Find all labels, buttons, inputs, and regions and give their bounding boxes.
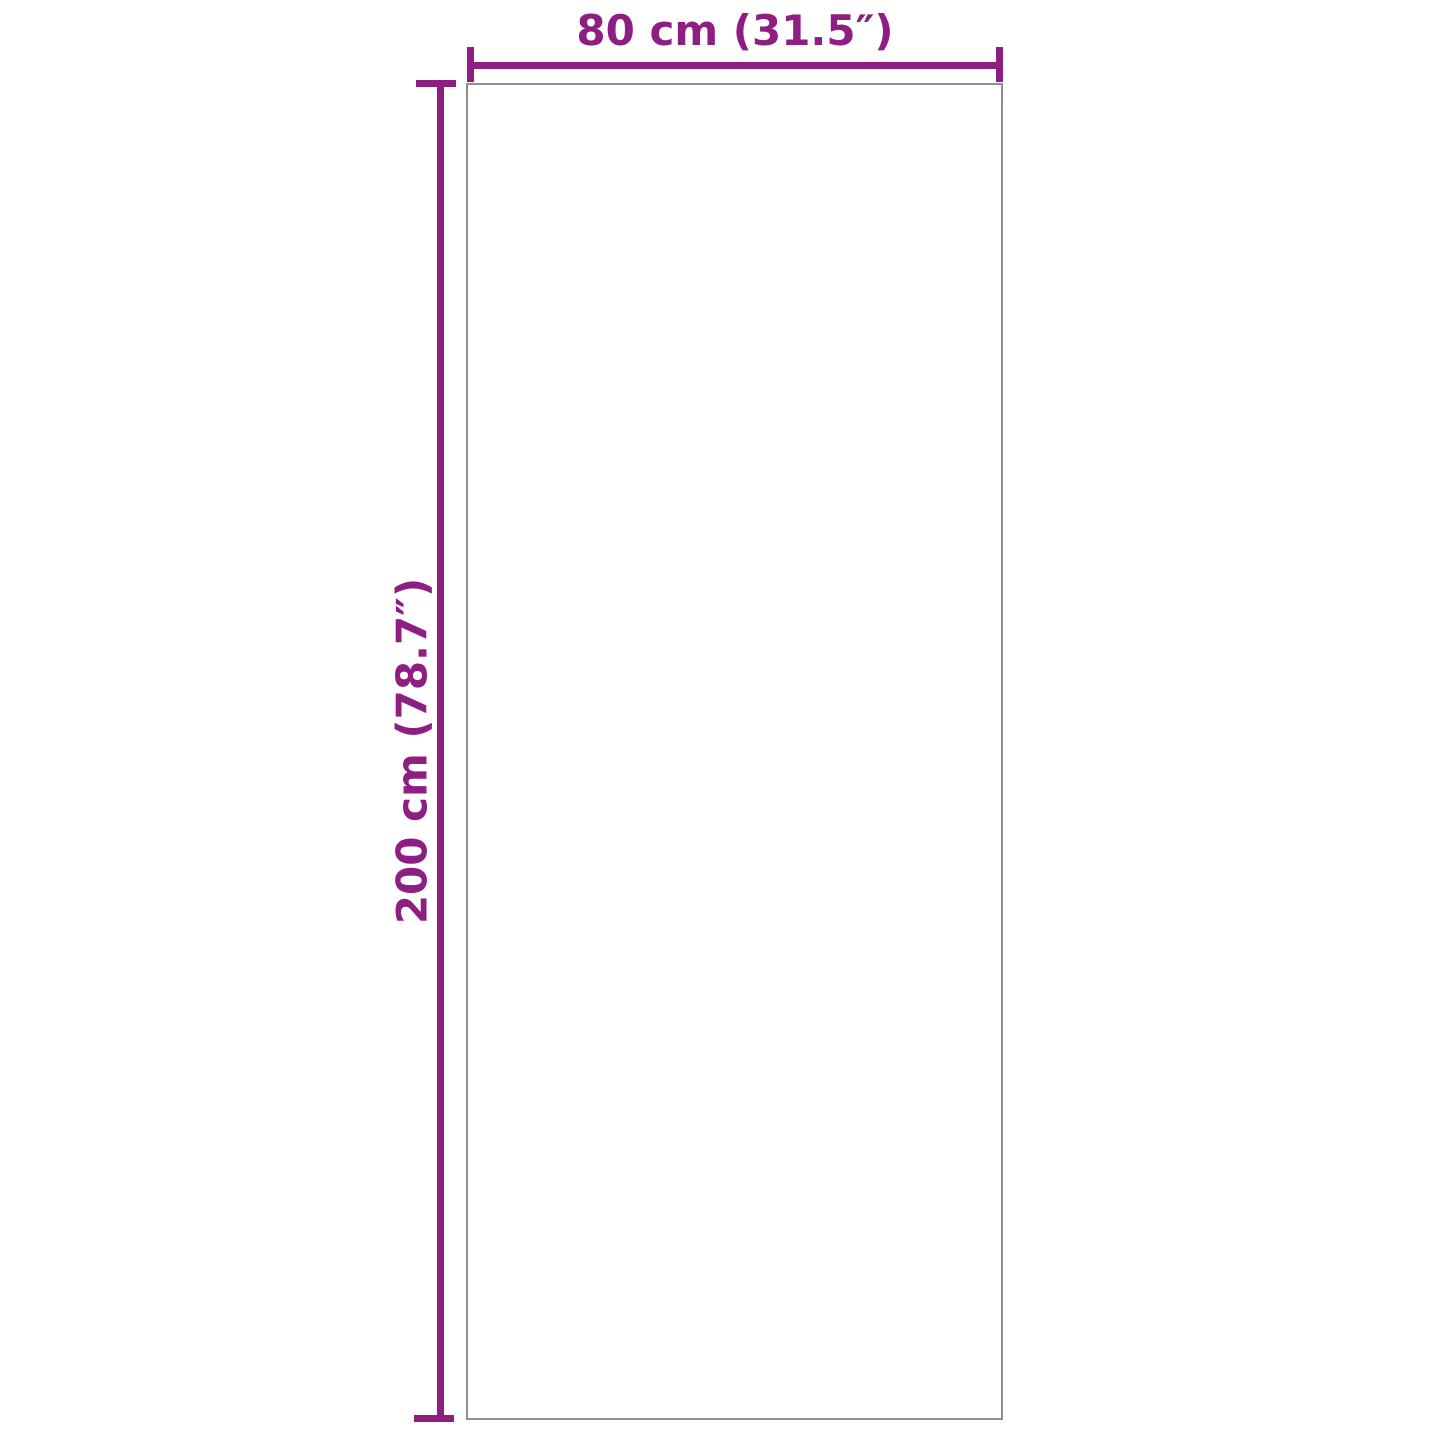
width-dimension-line — [467, 62, 1003, 69]
height-dimension-tick-bottom — [414, 1415, 454, 1422]
product-outline-rectangle — [466, 83, 1003, 1420]
dimension-diagram: 80 cm (31.5″) 200 cm (78.7″) — [0, 0, 1445, 1445]
height-dimension-label: 200 cm (78.7″) — [388, 578, 437, 924]
height-dimension-line — [437, 80, 444, 1422]
height-dimension-tick-top — [416, 80, 456, 87]
width-dimension-label: 80 cm (31.5″) — [467, 6, 1003, 55]
